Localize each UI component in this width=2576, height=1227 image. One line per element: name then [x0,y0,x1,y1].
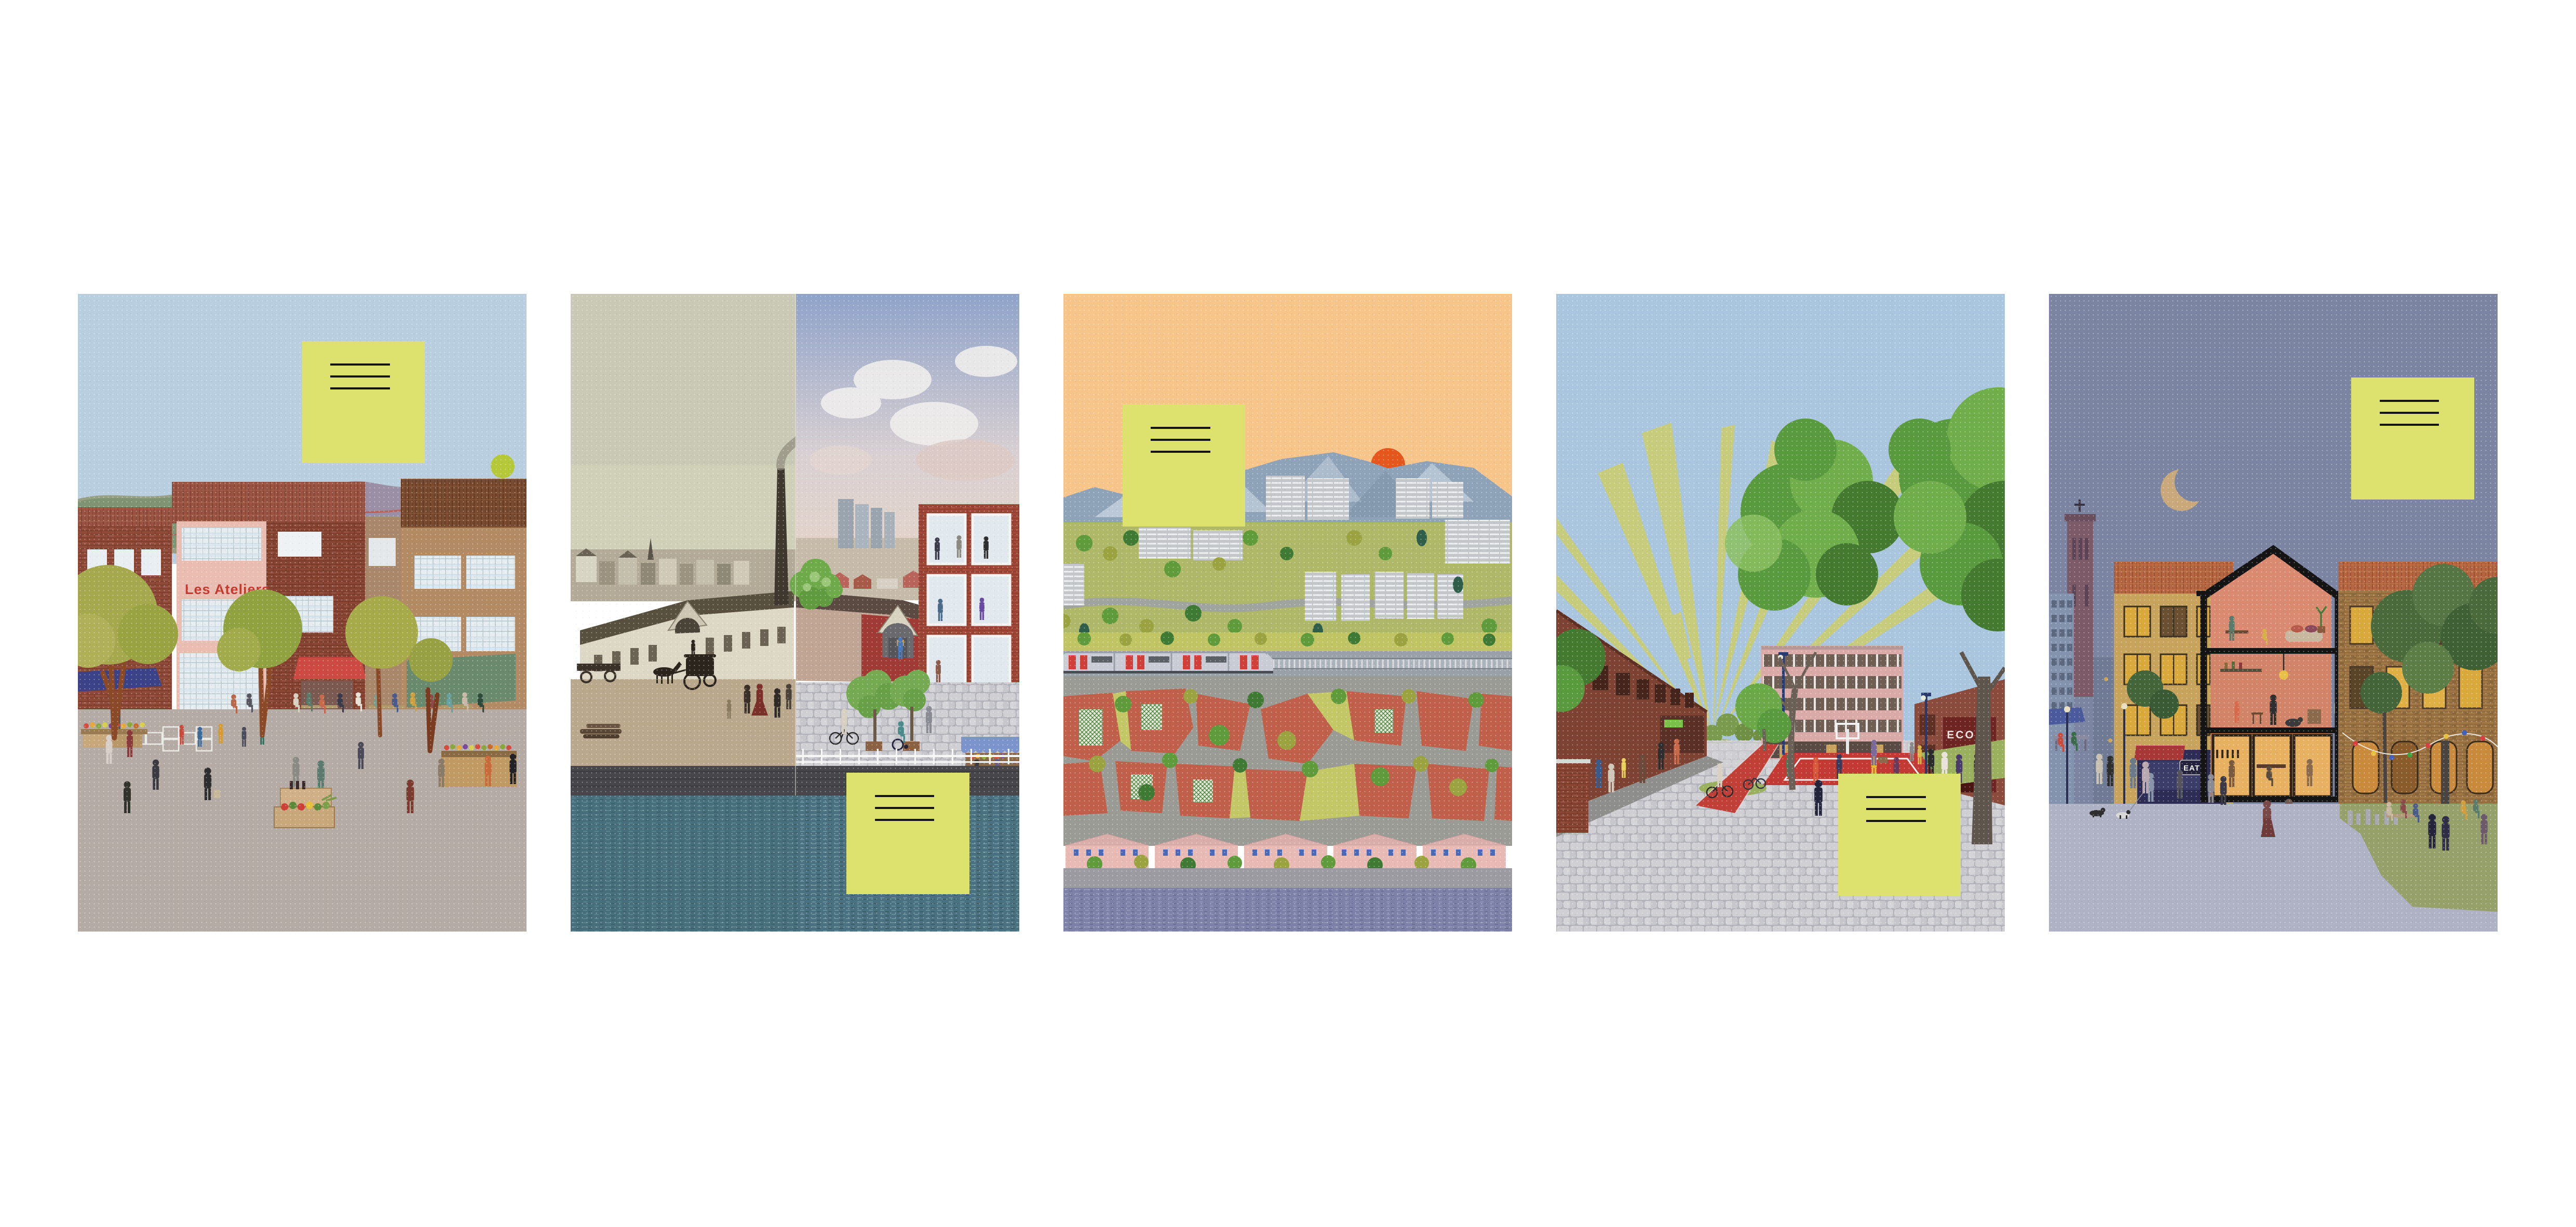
sticky-note[interactable] [302,341,425,463]
commuter-train [1063,653,1273,673]
panel-aerial-masterplan[interactable] [1063,294,1512,932]
sticky-note-text-lines [330,363,389,389]
left-highrise [2049,594,2074,804]
green-strip-above-rail [1063,631,1512,651]
brick-wall [1556,762,1588,833]
section-house [2196,549,2345,834]
ground-floor-cafe [2213,735,2331,797]
sticky-note[interactable] [2351,377,2474,500]
panel-market-square[interactable]: Les Ateliers [78,294,527,932]
green-sun-bush [491,454,515,478]
red-awning [2134,746,2185,760]
split-seam [795,294,796,795]
sticky-note[interactable] [846,773,969,894]
shop-sign-green [1664,720,1683,727]
terracotta-city-blocks [1063,676,1512,835]
vegetable-crates [274,781,336,828]
canvas-background: { "canvas": {"width_px": 4961, "height_p… [0,0,2576,1227]
river-water [1063,888,1512,932]
sticky-note-text-lines [2380,400,2439,426]
quayside-warehouses [1063,821,1512,873]
modern-half [790,294,1019,788]
sticky-note-text-lines [875,795,935,821]
sticky-note[interactable] [1838,774,1961,896]
panel-street-perspective[interactable]: ECOLE [1556,294,2005,932]
sticky-note-text-lines [1866,796,1925,822]
sticky-note[interactable] [1123,404,1245,527]
red-awning [293,657,366,679]
sticky-note-text-lines [1151,427,1210,453]
quay-strip [1063,868,1512,888]
restaurant-sign-eat: EAT [2183,764,2200,773]
panel-quay-then-and-now[interactable] [571,294,1019,932]
panel-night-section[interactable]: EAT [2049,294,2498,932]
illustration-aerial-masterplan [1063,294,1512,932]
